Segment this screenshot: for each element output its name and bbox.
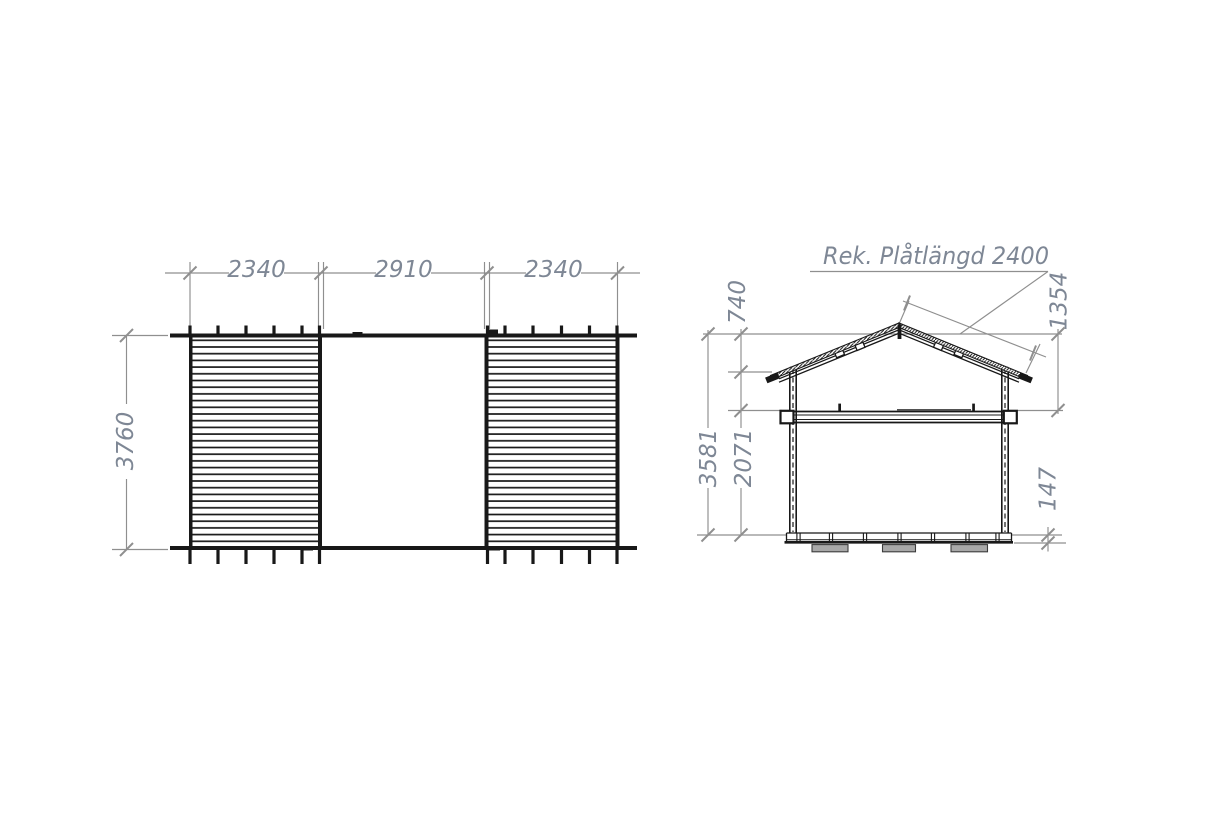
section-dim-ridge-to-eave: 740: [725, 280, 751, 324]
tie-beam: [783, 404, 1015, 423]
plan-view: 2340 2910 2340 3760: [112, 257, 640, 564]
section-dim-sheet-drop: 1354: [1047, 272, 1073, 331]
plan-building: [170, 326, 637, 565]
foundation-pad: [812, 545, 848, 552]
plan-joist-ticks-bottom: [188, 550, 618, 564]
drawing-canvas: 2340 2910 2340 3760: [0, 0, 1214, 818]
plan-left-bay-hatch: [193, 338, 319, 547]
beam-cleat-left: [838, 404, 841, 412]
section-building: [765, 323, 1033, 552]
section-dimensions: 3581 740 2071 1354 147 Rek. Plåtlängd 24…: [696, 241, 1073, 552]
wall-post-left: [790, 368, 796, 534]
floor-assembly: [785, 533, 1014, 543]
foundation-pad: [883, 545, 916, 552]
sheet-length-leader: [960, 272, 1048, 335]
plan-left-bay-right-edge: [318, 338, 322, 547]
foundation-pads: [812, 545, 988, 552]
section-view: 3581 740 2071 1354 147 Rek. Plåtlängd 24…: [696, 241, 1073, 552]
roof-sheet-left: [771, 323, 900, 380]
plan-right-bay-left-edge: [485, 338, 489, 547]
plan-right-bay-right-edge: [616, 338, 620, 547]
plan-dim-depth: 3760: [113, 412, 139, 471]
plan-joist-ticks-top: [188, 326, 618, 334]
section-dim-foundation: 147: [1036, 467, 1062, 511]
plan-dim-width-right: 2340: [524, 257, 583, 283]
slope-dimension-line: [903, 301, 1046, 357]
section-dim-wall-height: 2071: [731, 429, 757, 488]
plan-dim-width-middle: 2910: [374, 257, 433, 283]
technical-drawing: 2340 2910 2340 3760: [0, 0, 1214, 818]
slope-extension-upper: [900, 301, 910, 323]
plan-dim-width-left: 2340: [227, 257, 286, 283]
ridge-cap: [898, 325, 902, 340]
beam-end-block-right: [1004, 411, 1017, 424]
wall-post-right: [1002, 368, 1008, 534]
slope-extension-lower: [1026, 344, 1040, 373]
sheet-length-title: Rek. Plåtlängd 2400: [823, 241, 1049, 270]
foundation-pad: [951, 545, 988, 552]
beam-end-block-left: [781, 411, 794, 424]
plan-top-beam: [170, 334, 637, 338]
plan-beam-fixing-marks: [301, 330, 500, 551]
plan-bottom-beam: [170, 546, 637, 550]
plan-right-bay-hatch: [489, 338, 616, 547]
plan-left-bay-left-edge: [189, 338, 193, 547]
beam-cleat-right: [972, 404, 975, 412]
section-dim-total-height: 3581: [696, 429, 722, 488]
